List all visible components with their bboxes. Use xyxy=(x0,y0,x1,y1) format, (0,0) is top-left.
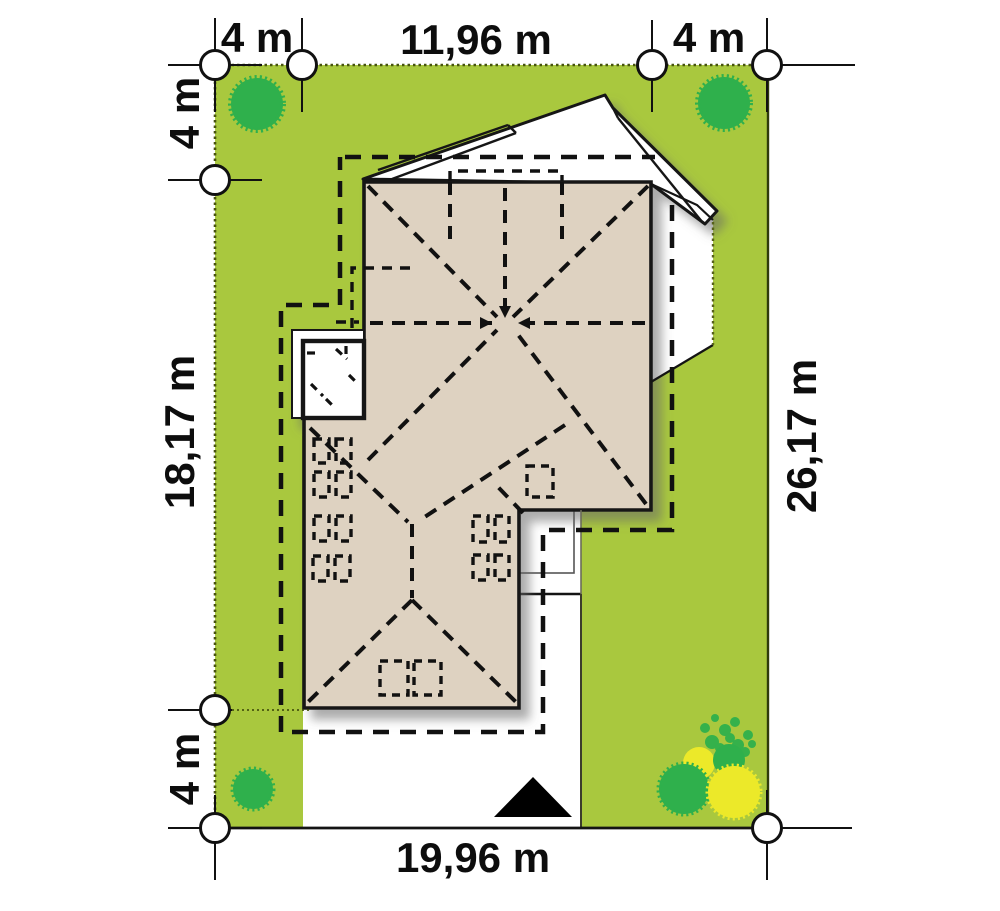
site-plan: 4 m 11,96 m 4 m 4 m 18,17 m 4 m 26,17 m … xyxy=(0,0,1000,911)
tree-top-left xyxy=(231,78,283,130)
dim-building-width: 11,96 m xyxy=(400,16,552,63)
site-plan-drawing: 4 m 11,96 m 4 m 4 m 18,17 m 4 m 26,17 m … xyxy=(0,0,1000,911)
dim-left-upper-setback: 4 m xyxy=(161,77,208,149)
tree-top-right xyxy=(698,77,750,129)
dim-plot-depth: 26,17 m xyxy=(778,359,825,513)
bush-green-large xyxy=(659,764,709,814)
bush-yellow-large xyxy=(708,766,760,818)
dim-building-depth: 18,17 m xyxy=(156,355,203,509)
dim-left-lower-setback: 4 m xyxy=(161,733,208,805)
dim-top-right-setback: 4 m xyxy=(673,14,745,61)
dim-top-left-setback: 4 m xyxy=(221,14,293,61)
tree-bottom-left xyxy=(233,769,273,809)
dim-plot-width: 19,96 m xyxy=(396,834,550,881)
